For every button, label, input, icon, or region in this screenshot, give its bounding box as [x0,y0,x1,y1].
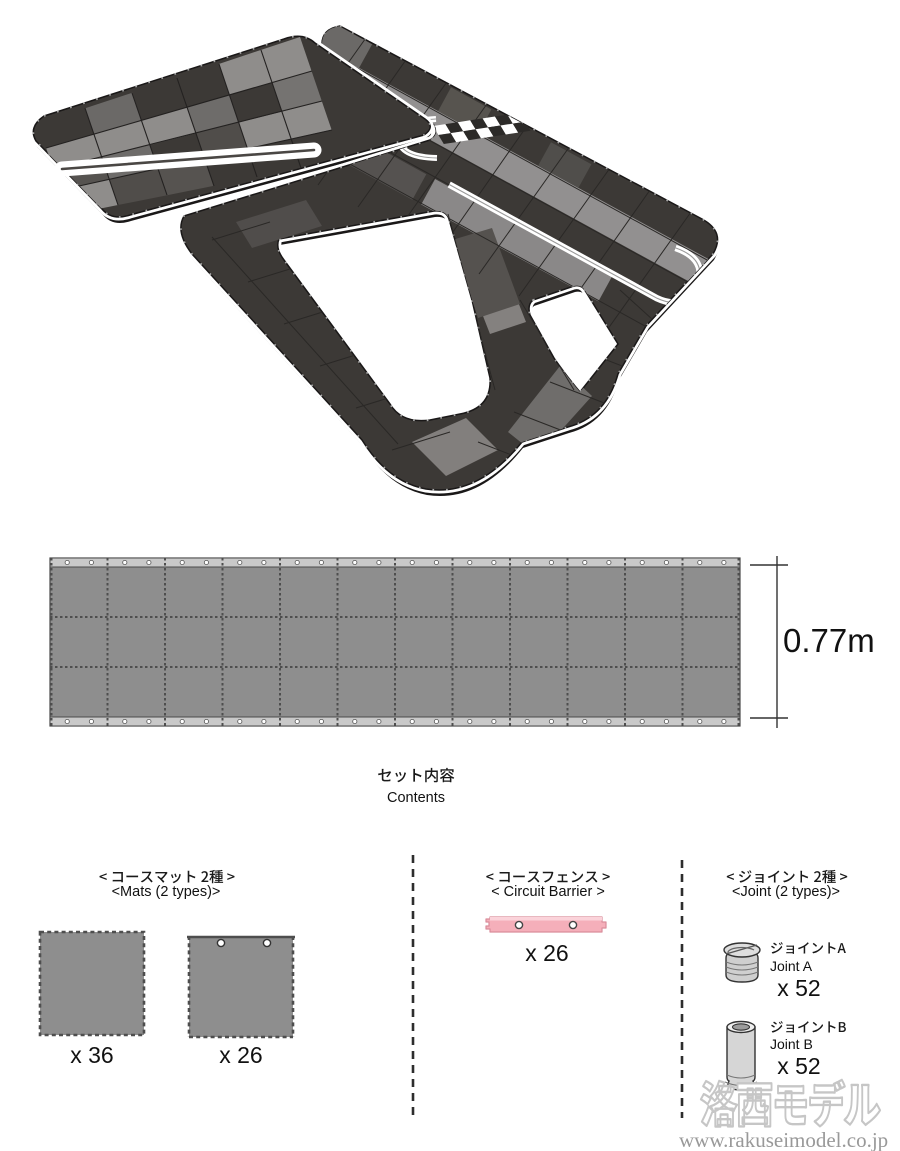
svg-text:Joint A: Joint A [770,958,813,974]
svg-text:Joint B: Joint B [770,1036,813,1052]
